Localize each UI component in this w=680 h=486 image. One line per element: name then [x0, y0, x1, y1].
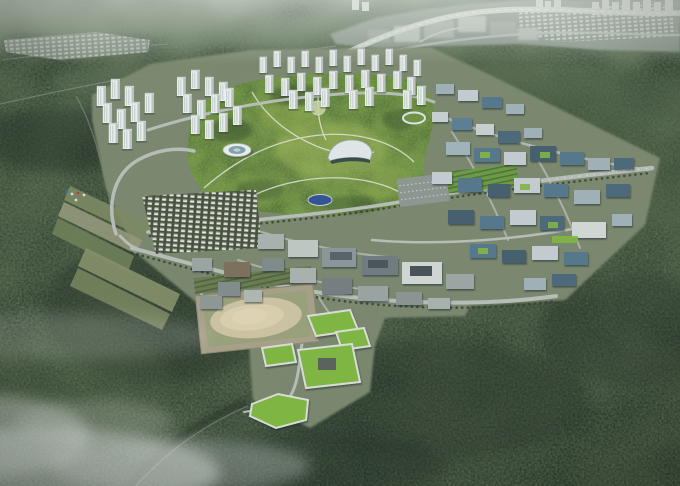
screenshot-stage: Bird's-eye 3D master-plan rendering of a… — [0, 0, 680, 486]
vignette — [0, 0, 680, 486]
aerial-rendering: Bird's-eye 3D master-plan rendering of a… — [0, 0, 680, 486]
